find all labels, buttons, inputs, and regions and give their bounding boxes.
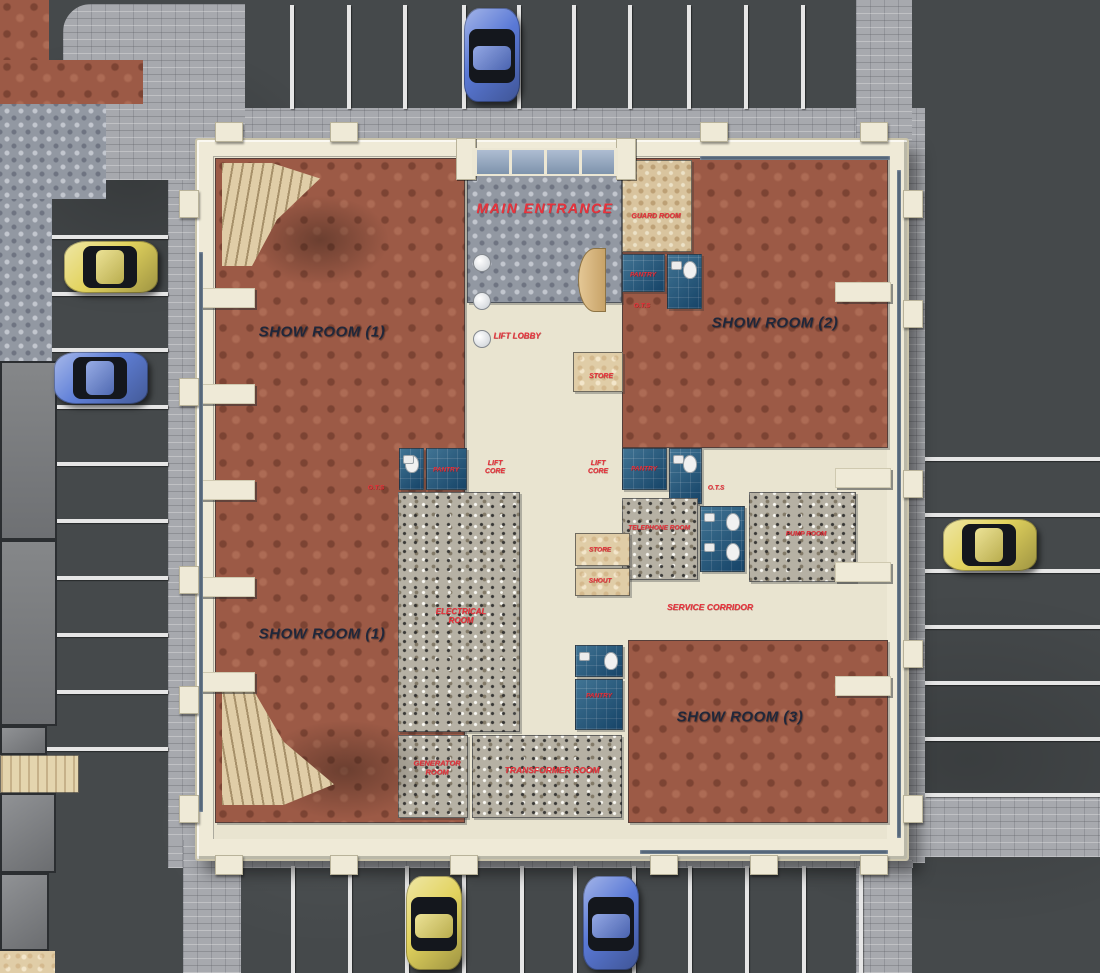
- car-bottom-blue: [583, 876, 639, 970]
- car-left-blue: [54, 352, 148, 404]
- car-left-yellow: [64, 241, 158, 293]
- car-roof: [473, 46, 511, 70]
- car-roof: [975, 528, 1003, 562]
- car-roof: [592, 914, 630, 938]
- car-right-yellow: [943, 519, 1037, 571]
- car-roof: [415, 914, 453, 938]
- car-roof: [86, 361, 114, 395]
- car-top-blue: [464, 8, 520, 102]
- car-bottom-yellow: [406, 876, 462, 970]
- parked-cars: [0, 0, 1100, 973]
- car-roof: [96, 250, 124, 284]
- site-plan: MAIN ENTRANCEGUARD ROOMPANTRYO.T.SLIFT L…: [0, 0, 1100, 973]
